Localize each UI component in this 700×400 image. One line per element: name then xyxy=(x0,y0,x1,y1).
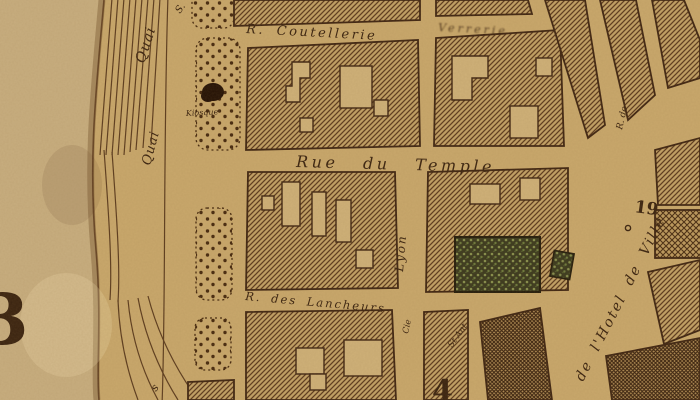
map-canvas: 3 Kiosque xyxy=(0,0,700,400)
paper-grain xyxy=(0,0,700,400)
map-screenshot: 3 Kiosque xyxy=(0,0,700,400)
